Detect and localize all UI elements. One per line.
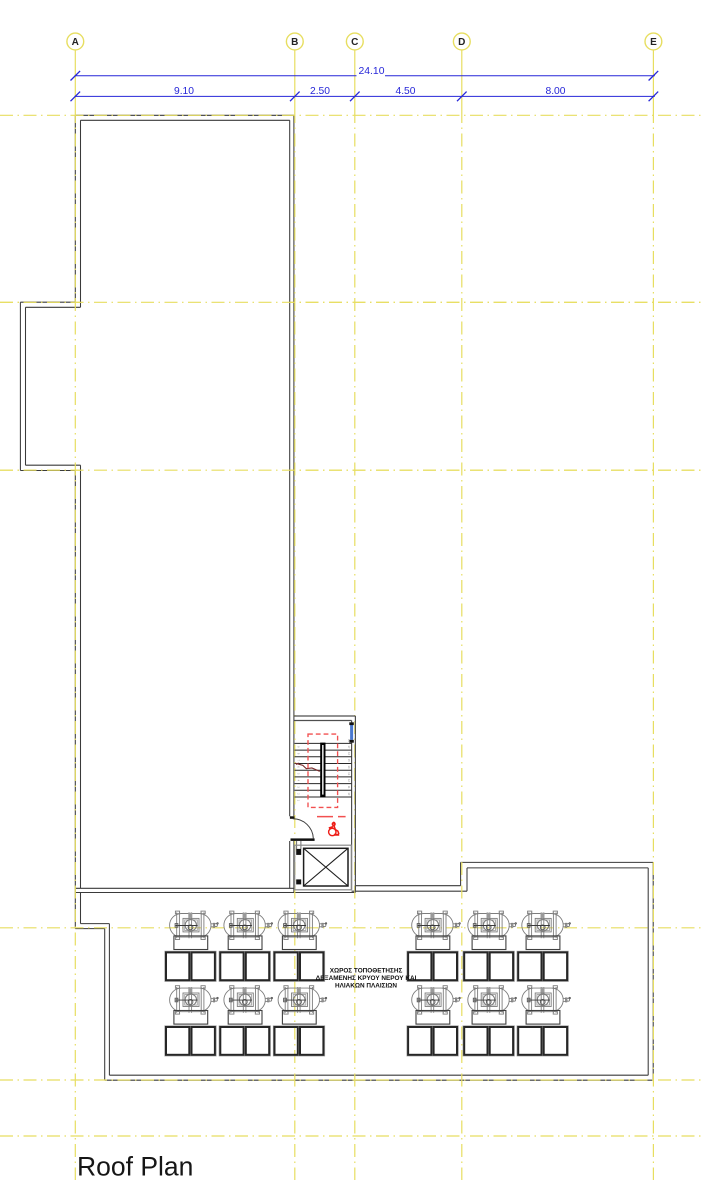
svg-text:C: C [351,37,358,48]
svg-text:B: B [291,37,298,48]
svg-text:4.50: 4.50 [395,86,415,97]
svg-text:ΔΕΞΑΜΕΝΗΣ ΚΡΥΟΥ ΝΕΡΟΥ ΚΑΙ: ΔΕΞΑΜΕΝΗΣ ΚΡΥΟΥ ΝΕΡΟΥ ΚΑΙ [316,975,417,982]
svg-text:Roof Plan: Roof Plan [77,1152,193,1180]
svg-text:E: E [650,37,657,48]
svg-text:24.10: 24.10 [358,66,384,77]
svg-text:D: D [458,37,465,48]
svg-text:ΗΛΙΑΚΩΝ ΠΛΑΙΣΙΩΝ: ΗΛΙΑΚΩΝ ΠΛΑΙΣΙΩΝ [335,982,397,989]
svg-text:2.50: 2.50 [310,86,330,97]
svg-text:A: A [72,37,79,48]
svg-text:8.00: 8.00 [545,86,565,97]
svg-text:9.10: 9.10 [174,86,194,97]
svg-text:ΧΩΡΟΣ ΤΟΠΟΘΕΤΗΣΗΣ: ΧΩΡΟΣ ΤΟΠΟΘΕΤΗΣΗΣ [330,967,403,974]
